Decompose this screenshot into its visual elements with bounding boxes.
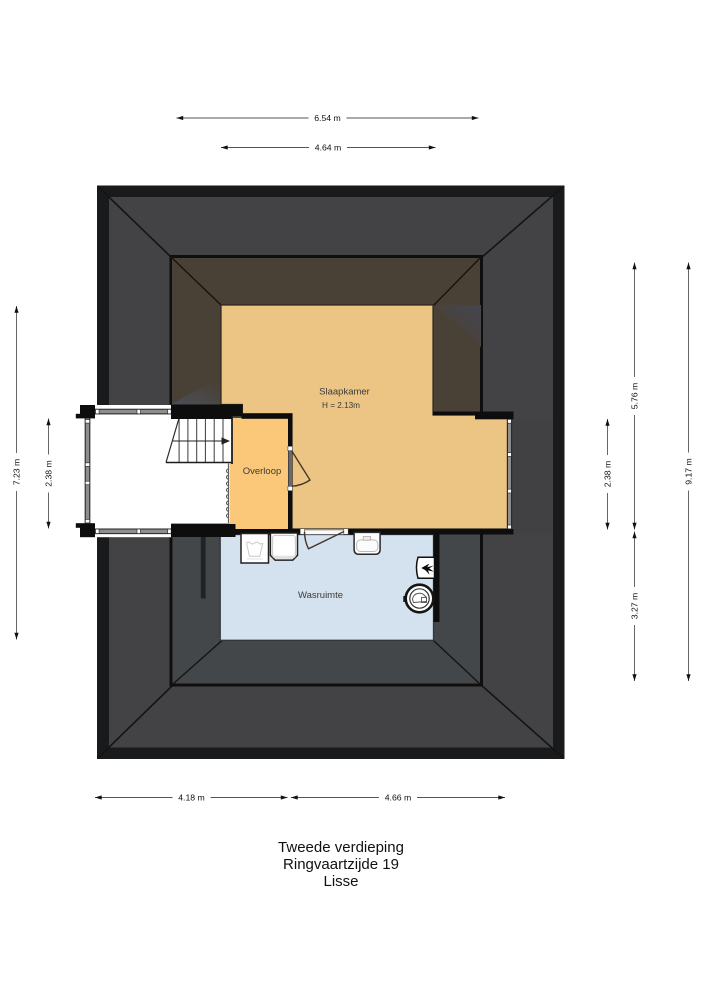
svg-text:Wasruimte: Wasruimte <box>298 590 343 601</box>
svg-text:9.17 m: 9.17 m <box>684 458 694 485</box>
svg-text:6.54 m: 6.54 m <box>314 113 341 123</box>
svg-text:2.38 m: 2.38 m <box>603 461 613 488</box>
svg-text:4.64 m: 4.64 m <box>315 143 342 153</box>
svg-text:2.38 m: 2.38 m <box>44 460 54 487</box>
svg-text:H = 2.13m: H = 2.13m <box>322 401 360 410</box>
svg-text:Ringvaartzijde 19: Ringvaartzijde 19 <box>283 856 399 873</box>
svg-text:3.27 m: 3.27 m <box>630 593 640 620</box>
svg-text:Lisse: Lisse <box>323 873 358 890</box>
svg-text:4.18 m: 4.18 m <box>178 793 205 803</box>
svg-text:Tweede verdieping: Tweede verdieping <box>278 839 404 856</box>
svg-text:5.76 m: 5.76 m <box>630 383 640 410</box>
svg-text:Overloop: Overloop <box>243 466 282 477</box>
svg-text:Slaapkamer: Slaapkamer <box>319 387 370 398</box>
svg-text:7.23 m: 7.23 m <box>12 459 22 486</box>
svg-text:4.66 m: 4.66 m <box>385 793 412 803</box>
